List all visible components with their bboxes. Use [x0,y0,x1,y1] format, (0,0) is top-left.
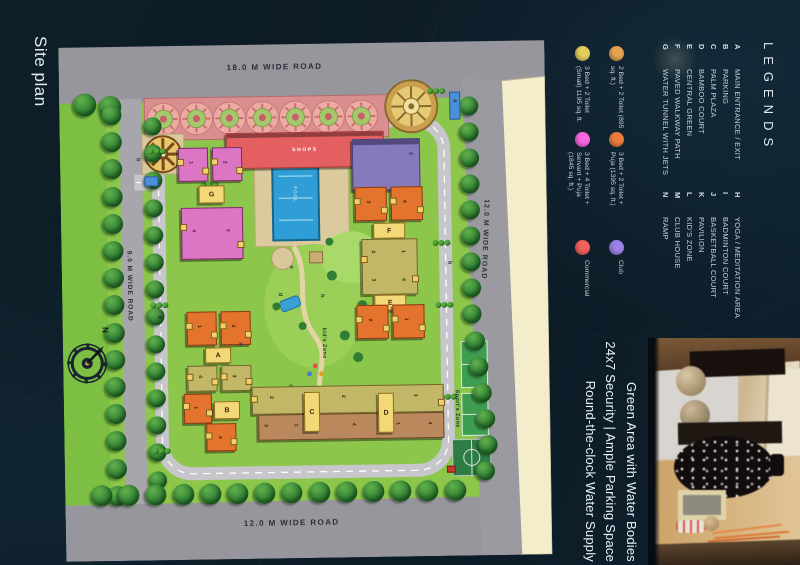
unit-color-dot [609,132,624,147]
map-marker: b [135,158,141,161]
legend-key: J [709,192,718,217]
legends-title: LEGENDS [761,42,776,153]
map-markers: aaabbbedh [58,2,553,562]
unit-type-label: 3 Bed + 2 Toilet + Puja (1395 sq. ft.) [608,152,624,216]
legend-item: DBAMBOO COURT [694,44,706,192]
unit-type-item: 2 Bed + 2 Toilet (895 sq. ft.) [590,46,624,132]
legend-key: I [721,192,730,217]
legend-key: H [733,192,742,217]
unit-type-label: 3 Bed + 2 Toilet (Small) 1195 sq. ft. [574,66,590,130]
legend-item: FPAVED WALKWAY PATH [670,44,682,192]
legend-item: LKID'S ZONE [682,192,694,318]
legend-item: HYOGA / MEDITATION AREA [730,192,742,318]
legend-label: PALM PLAZA [709,69,718,118]
tagline: Green Area with Water Bodies [621,300,642,562]
legend-item: MCLUB HOUSE [670,192,682,318]
map-marker: a [237,342,243,345]
map-marker: a [149,186,155,189]
unit-type-label: 2 Bed + 2 Toilet (895 sq. ft.) [608,66,624,130]
legends-list: AMAIN ENTRANCE / EXIT BPARKING CPALM PLA… [658,44,742,318]
legend-key: K [697,192,706,217]
map-marker: d [277,293,283,296]
legend-label: WATER TUNNEL WITH JETS [661,69,670,175]
legend-item: ECENTRAL GREEN [682,44,694,192]
legend-item: IBADMINTON COURT [718,192,730,318]
legend-key: E [685,44,694,69]
map-marker: e [288,266,294,269]
unit-type-item: 3 Bed + 4 Toilet + Servant + Puja (1845 … [556,132,590,240]
legend-item: CPALM PLAZA [706,44,718,192]
unit-color-dot [575,132,590,147]
legend-label: PARKING [721,69,730,104]
unit-color-dot [575,240,590,255]
legend-label: KID'S ZONE [685,217,694,262]
legend-item: JBASKETBALL COURT [706,192,718,318]
legend-item: AMAIN ENTRANCE / EXIT [730,44,742,192]
legend-label: CENTRAL GREEN [685,69,694,136]
legend-item: GWATER TUNNEL WITH JETS [658,44,670,192]
unit-color-dot [575,46,590,61]
legend-key: D [697,44,706,69]
brochure-page: Site plan [0,0,800,565]
legend-label: PAVILION [697,217,706,253]
legend-item: NRAMP [658,192,670,318]
unit-types-list: 2 Bed + 2 Toilet (895 sq. ft.) 3 Bed + 2… [556,46,624,324]
legend-key: F [673,44,682,69]
tagline: 24x7 Security | Ample Parking Space [600,300,621,562]
page-title: Site plan [30,36,50,107]
unit-color-dot [609,46,624,61]
legend-key: C [709,44,718,69]
legend-label: BASKETBALL COURT [709,217,718,298]
legend-item: KPAVILION [694,192,706,318]
site-plan-map: N SHOPS 3 G 1 2 4 3 F [58,2,553,562]
unit-color-dot [609,240,624,255]
tagline: Round-the-clock Water Supply [580,300,601,562]
legend-label: MAIN ENTRANCE / EXIT [733,69,742,160]
legend-label: RAMP [661,217,670,240]
legend-label: CLUB HOUSE [673,217,682,269]
map-marker: b [156,316,162,319]
legend-key: L [685,192,694,217]
decor-photo-art [648,338,800,565]
legend-label: BAMBOO COURT [697,69,706,134]
unit-type-label: 3 Bed + 4 Toilet + Servant + Puja (1845 … [565,152,590,216]
decor-photo [648,338,800,565]
legend-item: BPARKING [718,44,730,192]
unit-type-item: 3 Bed + 2 Toilet (Small) 1195 sq. ft. [556,46,590,132]
unit-type-item: 3 Bed + 2 Toilet + Puja (1395 sq. ft.) [590,132,624,240]
legend-key: B [721,44,730,69]
legend-label: YOGA / MEDITATION AREA [733,217,742,318]
legend-key: M [673,192,682,217]
map-marker: h [319,294,325,297]
legend-key: N [661,192,670,217]
legend-label: BADMINTON COURT [721,217,730,295]
legend-key: A [733,44,742,69]
photo-shadow-edge [648,338,660,565]
legend-label: PAVED WALKWAY PATH [673,69,682,159]
map-marker: b [446,261,452,264]
legend-key: G [661,44,670,69]
map-marker: a [452,99,458,102]
taglines: Green Area with Water Bodies 24x7 Securi… [580,300,642,562]
